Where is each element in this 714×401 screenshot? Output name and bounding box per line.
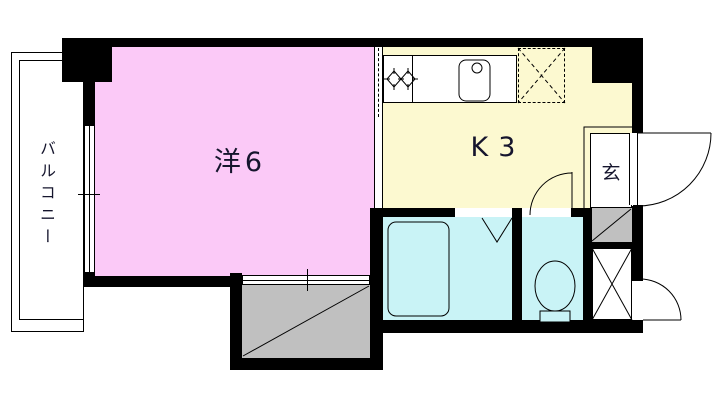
wall-bottom (370, 320, 643, 333)
wall-right-upper (632, 47, 643, 133)
doorframe-post-top (633, 123, 643, 133)
wall-corner-top-left (62, 38, 112, 82)
wall-kitchen-bath-a (370, 208, 455, 217)
wall-left-upper (83, 80, 95, 125)
window-balcony-centerline (89, 125, 90, 273)
window-closet-centerline (242, 280, 370, 281)
toilet-room-area (522, 217, 583, 320)
kitchen-counter-divider (412, 55, 413, 103)
wall-room-bottom (83, 276, 240, 287)
wall-closet-bottom (230, 358, 372, 370)
entrance-label: 玄 (591, 158, 631, 185)
pipe-space-box (592, 248, 632, 320)
doorframe-post-bottom (633, 205, 643, 215)
wall-toilet-right (583, 208, 592, 320)
floor-plan: 洋6 K3 玄 バルコニー (0, 0, 714, 401)
wall-top (62, 38, 643, 47)
kitchen-counter (383, 55, 517, 103)
wall-right-mid (632, 206, 643, 281)
refrigerator-space (518, 48, 565, 103)
wall-bath-toilet (512, 208, 522, 320)
window-balcony-tick (78, 194, 100, 195)
kitchen-label: K3 (455, 132, 541, 163)
shoe-storage-area (592, 208, 632, 242)
entrance-door-swing-arc (638, 133, 711, 206)
sliding-door-pocket-line (378, 48, 379, 117)
wall-closet-left (230, 273, 242, 370)
meter-box-door-swing-arc (640, 279, 681, 320)
bathroom-area (383, 217, 513, 320)
balcony-label: バルコニー (34, 140, 58, 270)
wall-bath-left (370, 208, 383, 370)
western-room-label: 洋6 (198, 140, 282, 179)
closet-area (242, 285, 370, 358)
window-closet-tick (307, 269, 308, 291)
